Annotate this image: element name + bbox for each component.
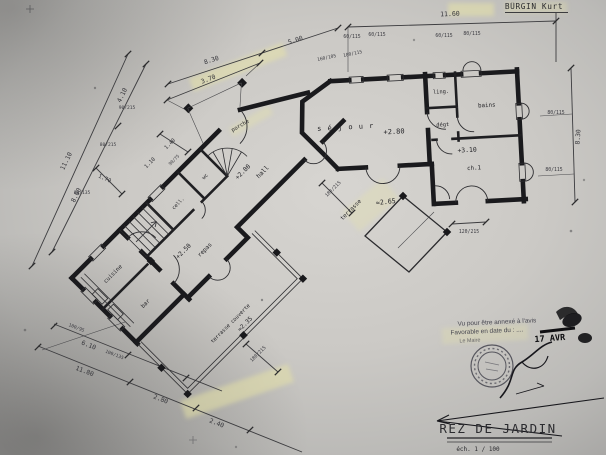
- room-label-bains: bains: [478, 103, 496, 110]
- dim-overall-top: 11.60: [440, 10, 460, 19]
- drawing-scale: éch. 1 / 100: [456, 446, 500, 453]
- opening-ch1-door: 120/215: [459, 229, 479, 235]
- opening-top-1: 60/115: [343, 34, 360, 40]
- floor-plan-drawing: BÜRGIN Kurt 11.60 8.30 5.00 3.70 8.30 11…: [0, 0, 606, 455]
- opening-left-2: 80/215: [100, 142, 117, 148]
- scanned-floor-plan-photo: BÜRGIN Kurt 11.60 8.30 5.00 3.70 8.30 11…: [0, 0, 606, 455]
- drawing-title: REZ DE JARDIN: [439, 421, 556, 436]
- stamp-signed-by: Le Maire: [459, 338, 480, 345]
- room-label-degt: dégt: [436, 121, 449, 129]
- dim-right-height: 8.30: [574, 129, 582, 145]
- opening-left-3: 80/135: [74, 190, 91, 196]
- opening-right-1: 80/115: [547, 110, 564, 116]
- architect-name: BÜRGIN Kurt: [505, 2, 563, 11]
- level-sejour: +2.80: [383, 127, 404, 136]
- room-label-ling: ling.: [433, 89, 450, 96]
- opening-top-4: 80/115: [463, 31, 480, 37]
- room-label-ch1: ch.1: [467, 165, 482, 172]
- opening-top-3: 60/115: [435, 33, 452, 39]
- level-ch1: +3.10: [457, 146, 477, 155]
- opening-top-2: 60/115: [368, 32, 385, 38]
- opening-left-1: 90/215: [119, 105, 136, 111]
- opening-right-2: 80/115: [545, 167, 562, 173]
